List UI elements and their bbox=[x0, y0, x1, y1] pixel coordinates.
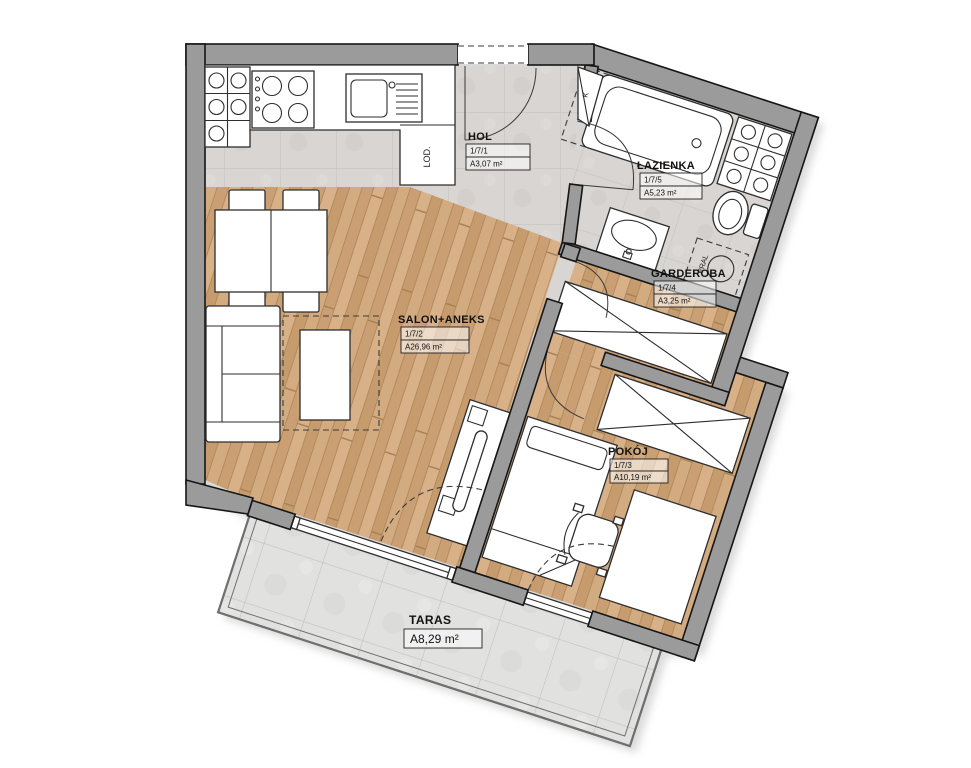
room-area: A10,19 m² bbox=[614, 473, 651, 482]
floor-plan-drawing: PRAL bbox=[0, 0, 971, 768]
room-area: A8,29 m² bbox=[410, 632, 459, 646]
dining-chair bbox=[283, 190, 319, 212]
coffee-table-icon bbox=[300, 330, 350, 420]
shaft-grid-box-kitchen bbox=[205, 67, 250, 147]
room-area: A26,96 m² bbox=[405, 343, 442, 352]
dining-chair bbox=[229, 190, 265, 212]
room-name: POKÓJ bbox=[608, 445, 648, 458]
room-area: A3,25 m² bbox=[658, 297, 691, 306]
room-area: A3,07 m² bbox=[470, 160, 503, 169]
room-name: GARDEROBA bbox=[651, 268, 726, 280]
room-id: 1/7/2 bbox=[405, 330, 423, 339]
room-name: SALON+ANEKS bbox=[398, 314, 485, 326]
room-name: HOL bbox=[468, 131, 492, 143]
room-id: 1/7/5 bbox=[644, 176, 662, 185]
room-area: A5,23 m² bbox=[644, 189, 677, 198]
stove-icon bbox=[252, 71, 314, 128]
room-label-garderoba: GARDEROBA 1/7/4 A3,25 m² bbox=[651, 268, 726, 307]
room-name: ŁAZIENKA bbox=[637, 160, 695, 172]
room-id: 1/7/3 bbox=[614, 461, 632, 470]
fridge-label: LOD. bbox=[422, 146, 432, 167]
kitchen-sink-icon bbox=[346, 74, 422, 122]
room-name: TARAS bbox=[409, 613, 451, 627]
floor-plan-page: { "plan": { "rooms": [ {"name": "HOL", "… bbox=[0, 0, 971, 768]
room-label-lazienka: ŁAZIENKA 1/7/5 A5,23 m² bbox=[637, 160, 702, 199]
sofa-icon bbox=[206, 306, 280, 442]
room-id: 1/7/1 bbox=[470, 147, 488, 156]
dining-chair bbox=[283, 290, 319, 312]
room-id: 1/7/4 bbox=[658, 284, 676, 293]
